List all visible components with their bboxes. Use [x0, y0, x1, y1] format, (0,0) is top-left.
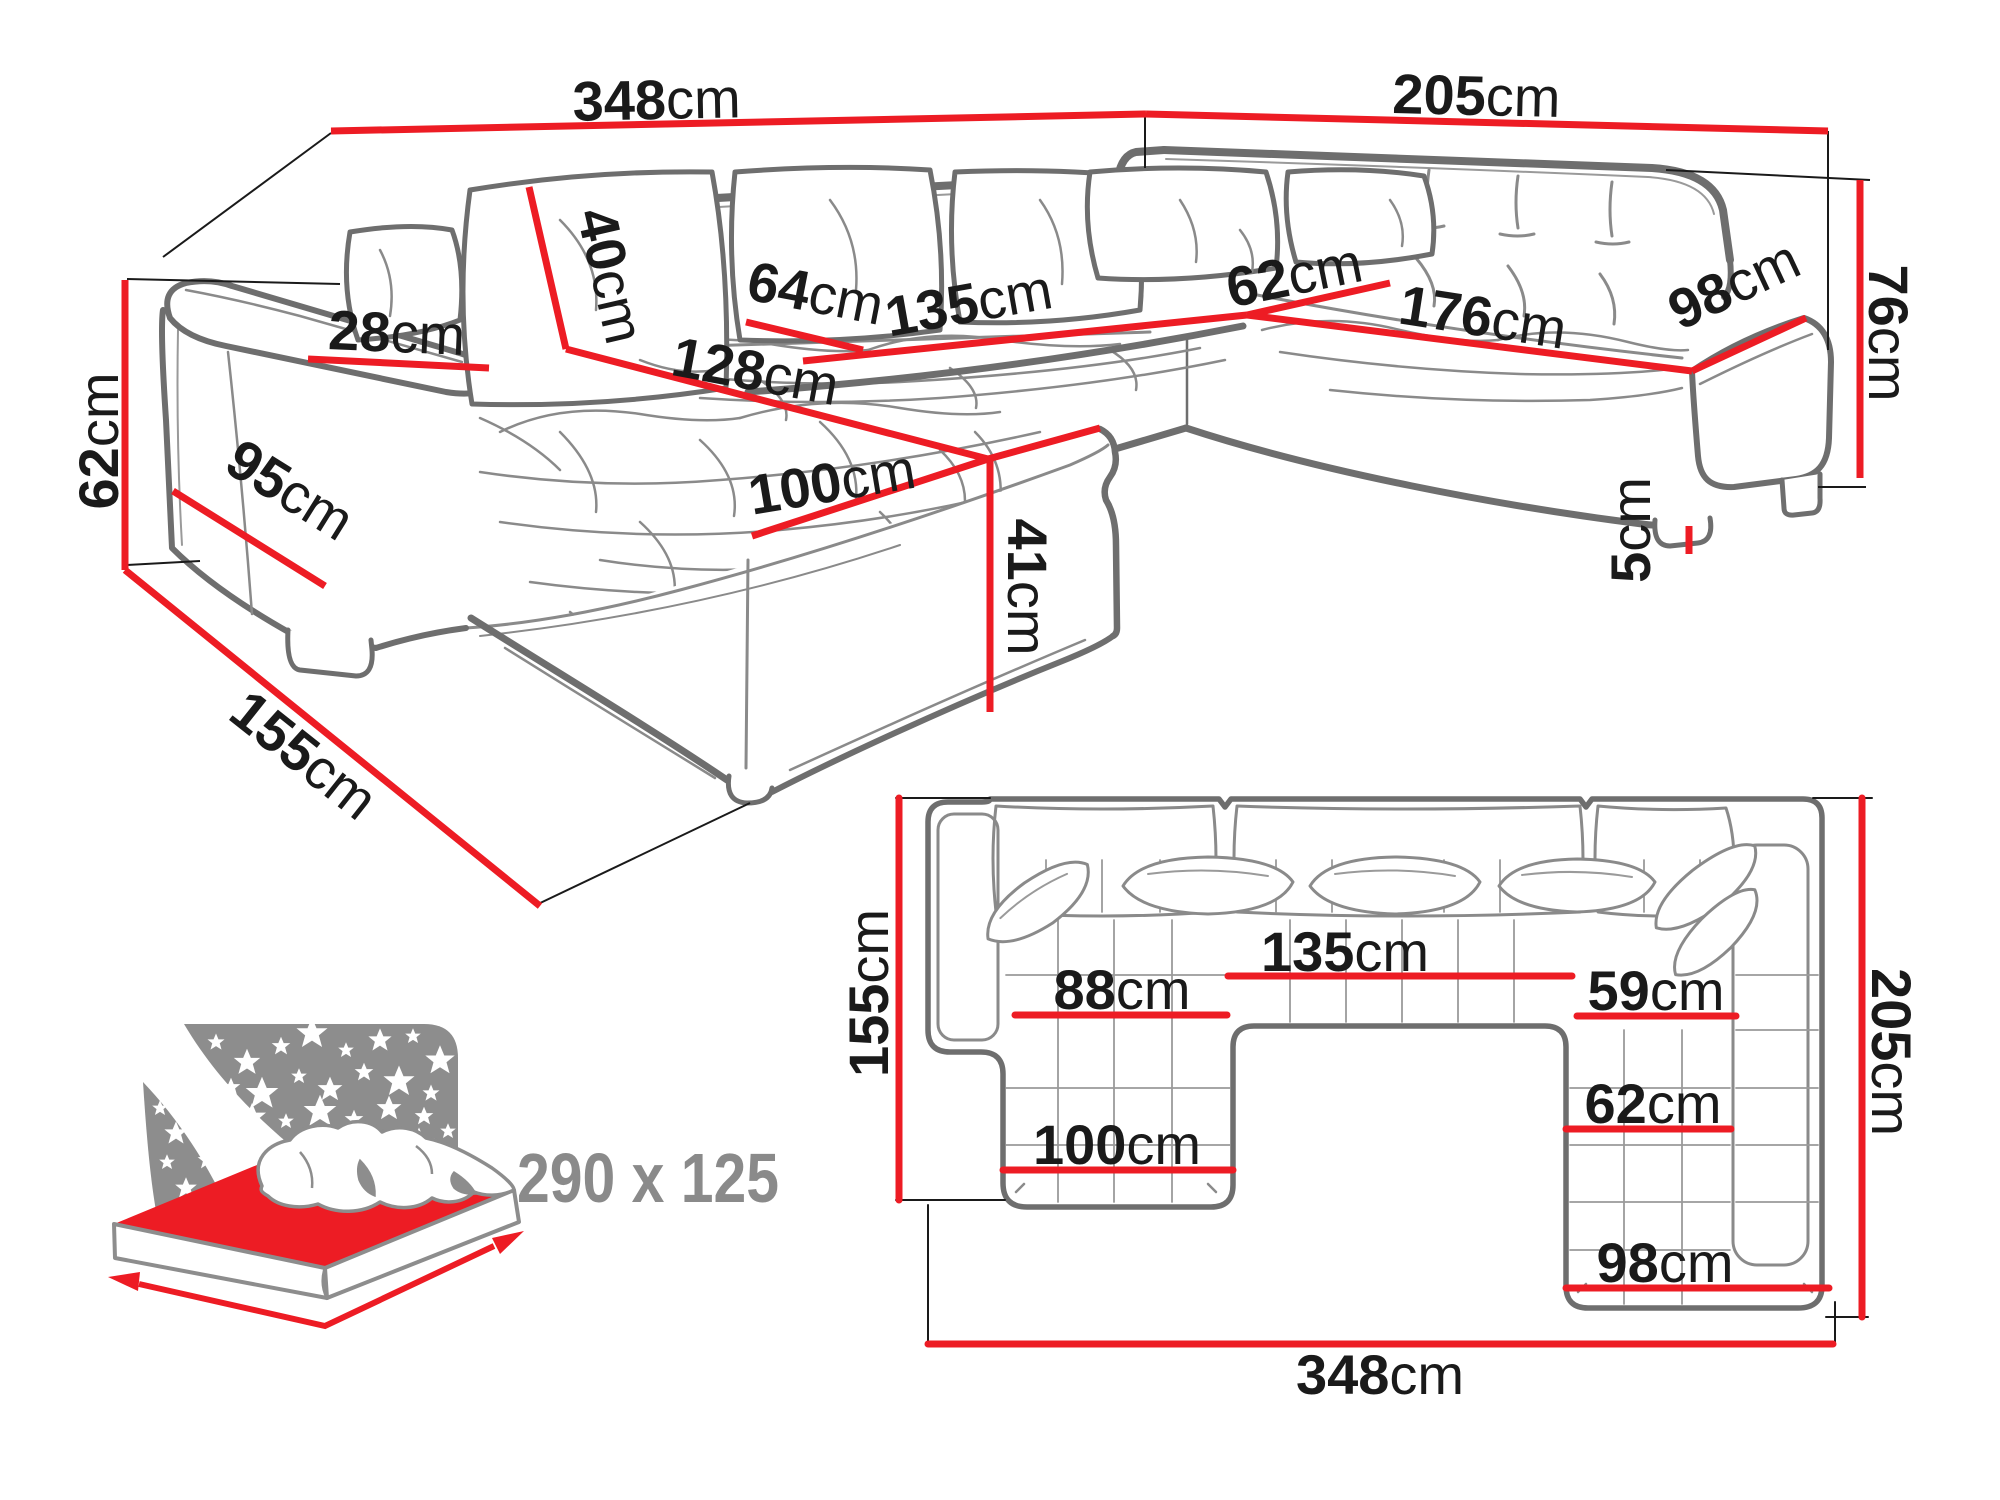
- svg-text:59cm: 59cm: [1588, 959, 1725, 1022]
- svg-text:205cm: 205cm: [1860, 968, 1923, 1136]
- svg-text:135cm: 135cm: [1261, 920, 1429, 983]
- svg-text:28cm: 28cm: [327, 298, 467, 367]
- svg-text:348cm: 348cm: [572, 66, 741, 133]
- svg-text:348cm: 348cm: [1296, 1343, 1464, 1406]
- svg-text:5cm: 5cm: [1599, 477, 1662, 583]
- svg-text:88cm: 88cm: [1054, 958, 1191, 1021]
- svg-text:290 x 125: 290 x 125: [517, 1139, 779, 1217]
- svg-text:62cm: 62cm: [67, 373, 130, 510]
- svg-text:98cm: 98cm: [1597, 1231, 1734, 1294]
- svg-text:41cm: 41cm: [996, 519, 1059, 656]
- svg-text:76cm: 76cm: [1857, 265, 1920, 402]
- svg-text:205cm: 205cm: [1392, 62, 1562, 129]
- svg-text:62cm: 62cm: [1585, 1072, 1722, 1135]
- svg-text:155cm: 155cm: [837, 909, 900, 1077]
- svg-text:100cm: 100cm: [1033, 1113, 1201, 1176]
